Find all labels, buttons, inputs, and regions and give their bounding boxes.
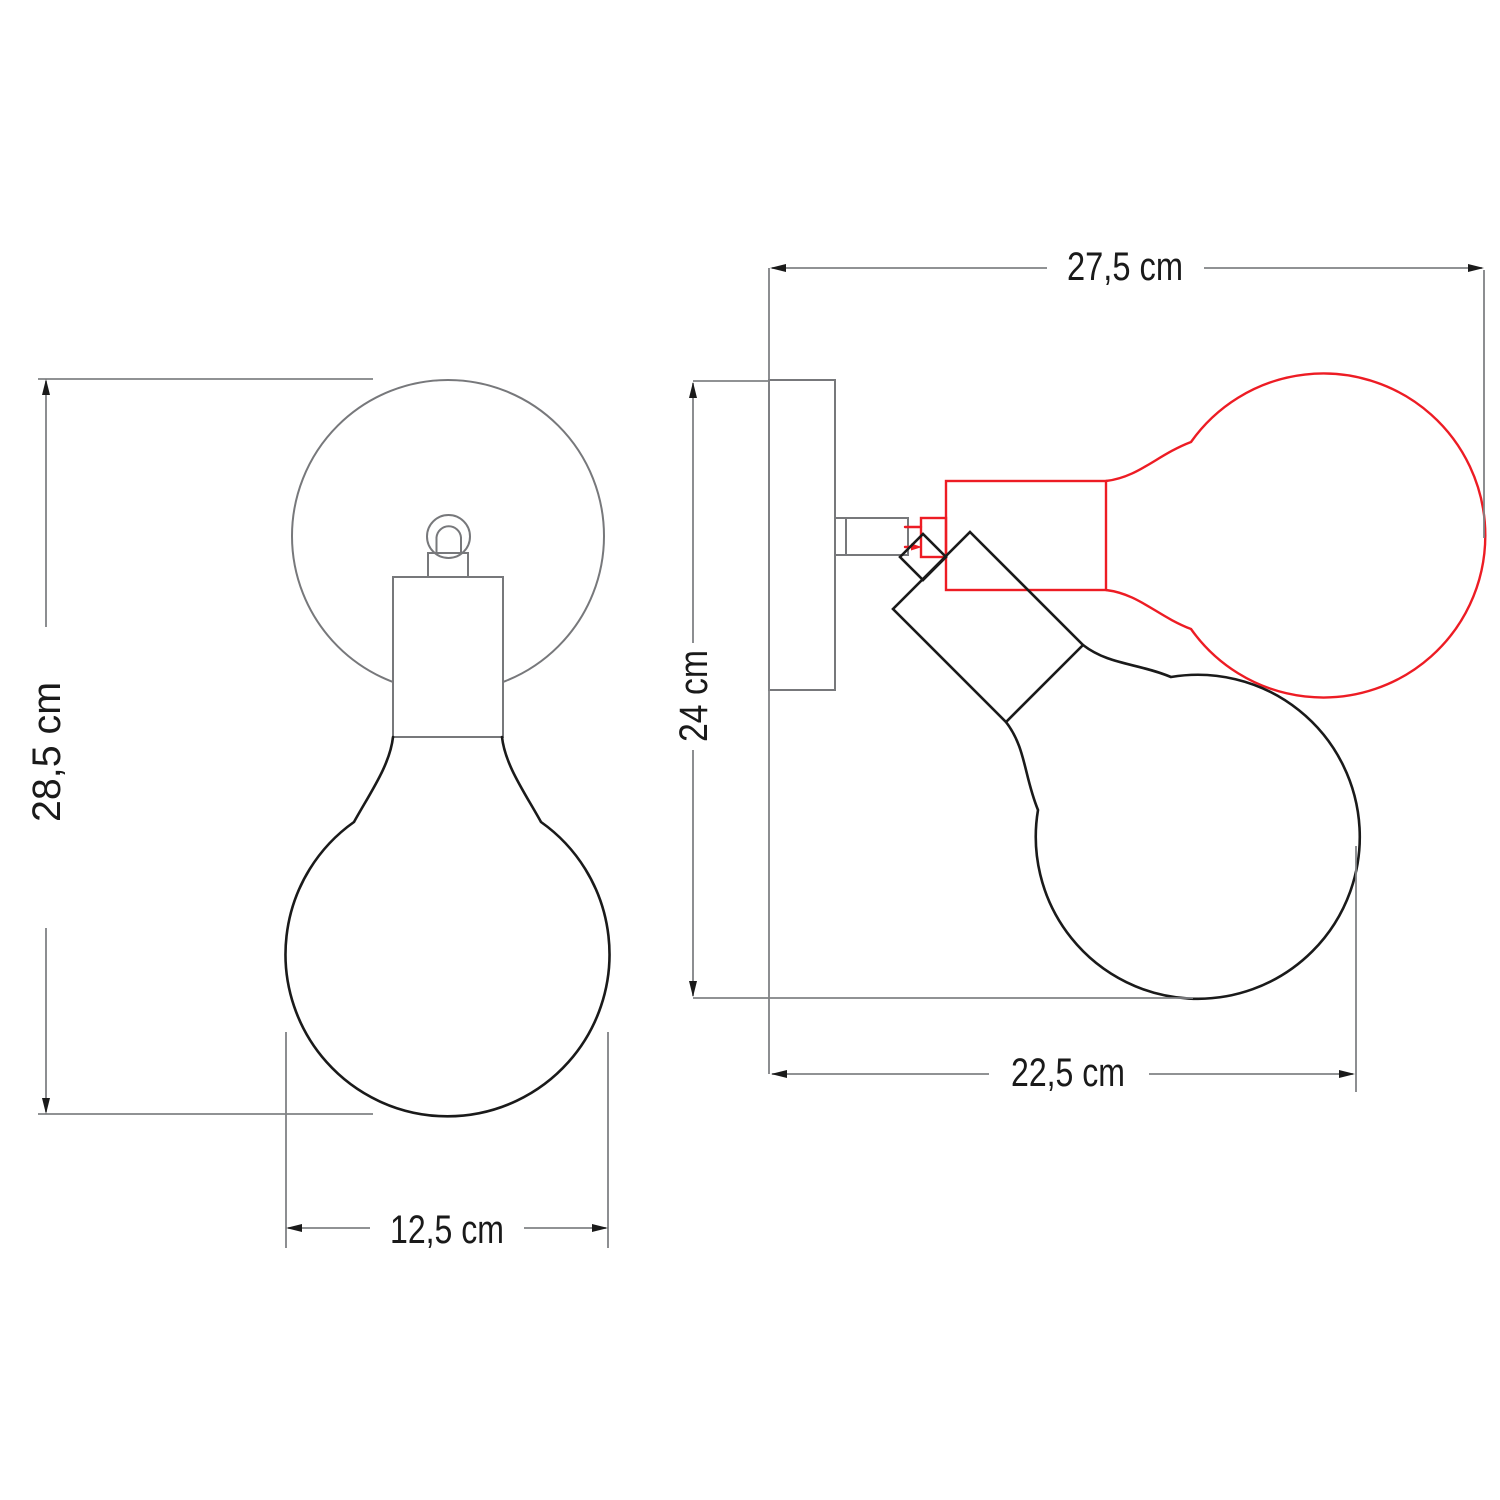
alt-bulb-outline: [1106, 374, 1485, 698]
front-height-label: 28,5 cm: [25, 682, 69, 822]
dimension-side-width: [769, 268, 1484, 1074]
bulb-outline-side: [1006, 645, 1360, 999]
front-view-bulb: [286, 737, 610, 1116]
lamp-holder-front: [393, 577, 503, 737]
holder-nipple-front: [428, 553, 468, 577]
technical-drawing-page: 28,5 cm 12,5 cm 27,5 cm 24 cm 22,5 cm: [0, 0, 1500, 1500]
side-width-label: 27,5 cm: [1067, 245, 1183, 289]
side-view-lamp: [893, 532, 1360, 999]
ring-loop-outer: [427, 515, 470, 558]
dimension-front-height: [38, 379, 373, 1114]
wall-plate-side: [769, 380, 835, 690]
side-projection-label: 22,5 cm: [1011, 1051, 1125, 1095]
alt-lamp-holder: [946, 481, 1106, 590]
alternate-position: [905, 374, 1485, 698]
lamp-holder-tilted: [893, 532, 1083, 722]
front-view: [292, 380, 604, 737]
side-height-label: 24 cm: [672, 650, 716, 742]
wall-lamp-dimension-diagram: 28,5 cm 12,5 cm 27,5 cm 24 cm 22,5 cm: [0, 0, 1500, 1500]
side-view-structure: [769, 380, 908, 690]
bulb-outline-front: [286, 737, 610, 1116]
ring-loop-inner: [437, 526, 462, 553]
dimension-lines: [38, 268, 1484, 1248]
front-width-label: 12,5 cm: [390, 1208, 504, 1252]
dimension-arrowheads: [42, 264, 1484, 1232]
dimension-labels: 28,5 cm 12,5 cm 27,5 cm 24 cm 22,5 cm: [25, 245, 1183, 1252]
